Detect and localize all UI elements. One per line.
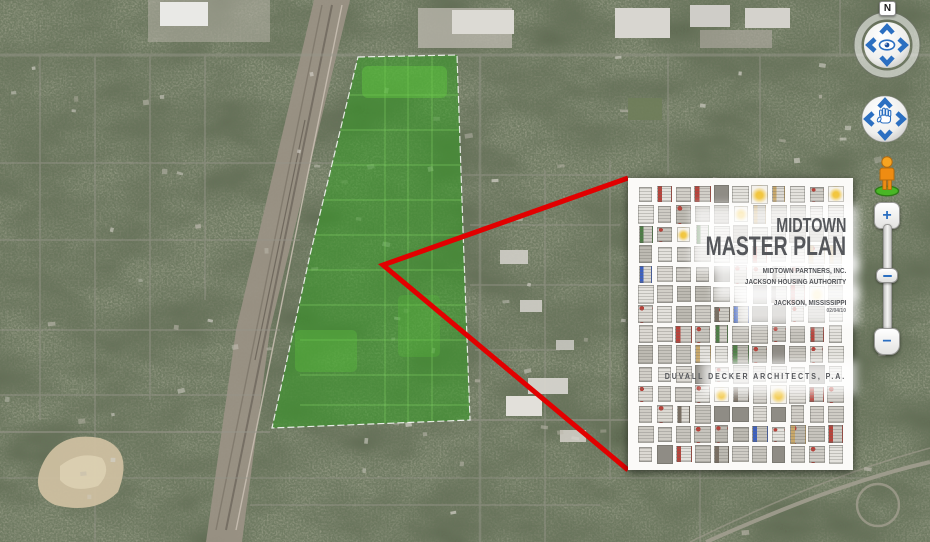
plan-thumbnail: [826, 424, 845, 444]
plan-thumbnail: [636, 264, 655, 284]
plan-thumbnail: [712, 324, 731, 344]
plan-thumbnail: [655, 344, 674, 364]
plan-thumbnail: [655, 324, 674, 344]
navigation-controls: N: [852, 0, 930, 370]
plan-thumbnail: [693, 424, 712, 444]
plan-thumbnail: [674, 184, 693, 204]
plan-thumbnail: [750, 404, 769, 424]
plan-thumbnail: [731, 424, 750, 444]
google-earth-viewport: MIDTOWN MASTER PLAN MIDTOWN PARTNERS, IN…: [0, 0, 930, 542]
plan-thumbnail: [636, 324, 655, 344]
plan-thumbnail: [636, 244, 655, 264]
plan-thumbnail: [674, 224, 693, 244]
plan-thumbnail: [693, 344, 712, 364]
plan-thumbnail: [788, 184, 807, 204]
plan-thumbnail: [769, 424, 788, 444]
look-joystick[interactable]: [854, 12, 920, 78]
plan-thumbnail: [769, 324, 788, 344]
plan-thumbnail: [636, 284, 655, 304]
plan-thumbnail: [788, 324, 807, 344]
plan-thumbnail: [826, 344, 845, 364]
plan-thumbnail: [674, 244, 693, 264]
cover-client-2: JACKSON HOUSING AUTHORITY: [745, 277, 846, 288]
plan-thumbnail: [788, 424, 807, 444]
plan-thumbnail: [693, 304, 712, 324]
plan-thumbnail: [712, 424, 731, 444]
plan-thumbnail: [807, 184, 826, 204]
plan-thumbnail: [636, 224, 655, 244]
plan-thumbnail: [769, 444, 788, 464]
plan-thumbnail: [655, 304, 674, 324]
plan-thumbnail: [674, 324, 693, 344]
plan-thumbnail: [807, 344, 826, 364]
plan-thumbnail: [674, 424, 693, 444]
plan-thumbnail: [750, 444, 769, 464]
plan-thumbnail: [731, 404, 750, 424]
plan-thumbnail: [731, 324, 750, 344]
plan-thumbnail: [807, 384, 826, 404]
plan-thumbnail: [826, 184, 845, 204]
plan-thumbnail: [655, 444, 674, 464]
plan-thumbnail: [636, 404, 655, 424]
plan-thumbnail: [788, 444, 807, 464]
north-button[interactable]: N: [879, 1, 896, 16]
plan-thumbnail: [693, 444, 712, 464]
plan-thumbnail: [769, 184, 788, 204]
plan-thumbnail: [674, 384, 693, 404]
plan-thumbnail: [826, 324, 845, 344]
plan-thumbnail: [788, 404, 807, 424]
plan-thumbnail: [788, 384, 807, 404]
plan-thumbnail: [712, 384, 731, 404]
pegman-icon[interactable]: [876, 157, 899, 196]
plan-thumbnail: [636, 344, 655, 364]
plan-thumbnail: [636, 364, 655, 384]
plan-thumbnail: [693, 324, 712, 344]
plan-thumbnail: [807, 424, 826, 444]
plan-thumbnail: [807, 404, 826, 424]
plan-thumbnail: [712, 404, 731, 424]
plan-thumbnail: [636, 184, 655, 204]
plan-thumbnail: [655, 184, 674, 204]
plan-thumbnail: [807, 324, 826, 344]
cover-clients: MIDTOWN PARTNERS, INC. JACKSON HOUSING A…: [745, 266, 846, 288]
move-joystick[interactable]: [862, 96, 908, 142]
plan-thumbnail: [636, 204, 655, 224]
plan-thumbnail: [731, 384, 750, 404]
plan-thumbnail: [807, 444, 826, 464]
plan-thumbnail: [674, 204, 693, 224]
cover-firm: DUVALL DECKER ARCHITECTS, P.A.: [665, 372, 846, 381]
plan-thumbnail: [655, 244, 674, 264]
zoom-out-button[interactable]: −: [874, 328, 900, 355]
plan-thumbnail: [731, 444, 750, 464]
plan-thumbnail: [693, 264, 712, 284]
plan-thumbnail: [712, 304, 731, 324]
cover-location: JACKSON, MISSISSIPPI: [773, 298, 846, 307]
plan-thumbnail: [731, 344, 750, 364]
plan-thumbnail: [693, 284, 712, 304]
cover-client-1: MIDTOWN PARTNERS, INC.: [745, 266, 846, 277]
plan-thumbnail: [693, 184, 712, 204]
plan-thumbnail: [769, 404, 788, 424]
cover-date: 02/04/10: [827, 308, 846, 314]
plan-thumbnail: [674, 304, 693, 324]
plan-thumbnail: [693, 404, 712, 424]
master-plan-cover-overlay[interactable]: MIDTOWN MASTER PLAN MIDTOWN PARTNERS, IN…: [628, 178, 853, 470]
plan-thumbnail: [674, 344, 693, 364]
plan-thumbnail: [712, 344, 731, 364]
plan-thumbnail: [655, 204, 674, 224]
plan-thumbnail: [674, 404, 693, 424]
plan-thumbnail: [712, 444, 731, 464]
plan-thumbnail: [731, 184, 750, 204]
plan-thumbnail: [655, 224, 674, 244]
plan-thumbnail: [636, 444, 655, 464]
plan-thumbnail: [750, 424, 769, 444]
plan-thumbnail: [712, 184, 731, 204]
plan-thumbnail: [655, 424, 674, 444]
plan-thumbnail: [693, 384, 712, 404]
zoom-slider-thumb[interactable]: [876, 268, 898, 283]
plan-thumbnail: [826, 444, 845, 464]
plan-thumbnail: [674, 284, 693, 304]
plan-thumbnail: [636, 304, 655, 324]
plan-thumbnail: [655, 264, 674, 284]
plan-thumbnail: [750, 384, 769, 404]
plan-thumbnail: [750, 184, 769, 204]
plan-thumbnail: [769, 384, 788, 404]
plan-thumbnail: [655, 404, 674, 424]
eye-icon: [880, 40, 895, 50]
plan-thumbnail: [826, 384, 845, 404]
cover-title-line2: MASTER PLAN: [706, 233, 846, 260]
plan-thumbnail: [655, 384, 674, 404]
plan-thumbnail: [674, 444, 693, 464]
plan-thumbnail: [674, 264, 693, 284]
plan-thumbnail: [750, 324, 769, 344]
plan-thumbnail: [750, 344, 769, 364]
plan-thumbnail: [636, 424, 655, 444]
plan-thumbnail: [636, 384, 655, 404]
plan-thumbnail: [655, 284, 674, 304]
plan-thumbnail: [788, 344, 807, 364]
plan-thumbnail: [769, 344, 788, 364]
plan-thumbnail: [826, 404, 845, 424]
